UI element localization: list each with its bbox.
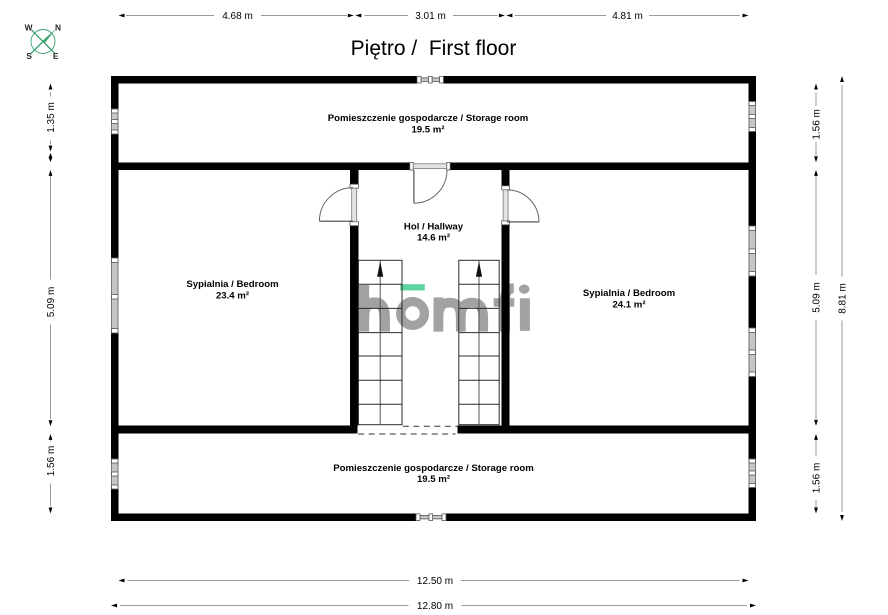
svg-text:19.5 m²: 19.5 m² [417, 474, 450, 485]
svg-text:W: W [25, 22, 33, 32]
svg-text:Pomieszczenie gospodarcze / St: Pomieszczenie gospodarcze / Storage room [328, 113, 528, 124]
svg-text:5.09 m: 5.09 m [46, 287, 57, 318]
svg-text:Hol / Hallway: Hol / Hallway [404, 221, 464, 232]
svg-text:Sypialnia / Bedroom: Sypialnia / Bedroom [583, 288, 675, 299]
svg-text:4.81 m: 4.81 m [612, 11, 643, 22]
svg-text:Piętro / First floor: Piętro / First floor [351, 37, 517, 60]
svg-text:3.01 m: 3.01 m [415, 11, 446, 22]
svg-text:4.68 m: 4.68 m [222, 11, 253, 22]
svg-text:12.80 m: 12.80 m [417, 601, 453, 612]
svg-text:1.35 m: 1.35 m [46, 102, 57, 133]
svg-text:12.50 m: 12.50 m [417, 576, 453, 587]
svg-text:19.5 m²: 19.5 m² [411, 125, 444, 136]
svg-text:8.81 m: 8.81 m [838, 283, 849, 314]
svg-text:14.6 m²: 14.6 m² [417, 232, 450, 243]
svg-text:24.1 m²: 24.1 m² [612, 300, 645, 311]
svg-text:Sypialnia / Bedroom: Sypialnia / Bedroom [186, 279, 278, 290]
svg-text:1.56 m: 1.56 m [46, 446, 57, 477]
svg-text:E: E [53, 51, 59, 61]
svg-text:S: S [26, 51, 32, 61]
svg-text:N: N [55, 22, 61, 32]
svg-text:1.56 m: 1.56 m [812, 109, 823, 140]
svg-text:1.56 m: 1.56 m [812, 463, 823, 494]
svg-text:23.4 m²: 23.4 m² [216, 290, 249, 301]
svg-text:Pomieszczenie gospodarcze / St: Pomieszczenie gospodarcze / Storage room [333, 463, 533, 474]
svg-text:5.09 m: 5.09 m [812, 282, 823, 313]
